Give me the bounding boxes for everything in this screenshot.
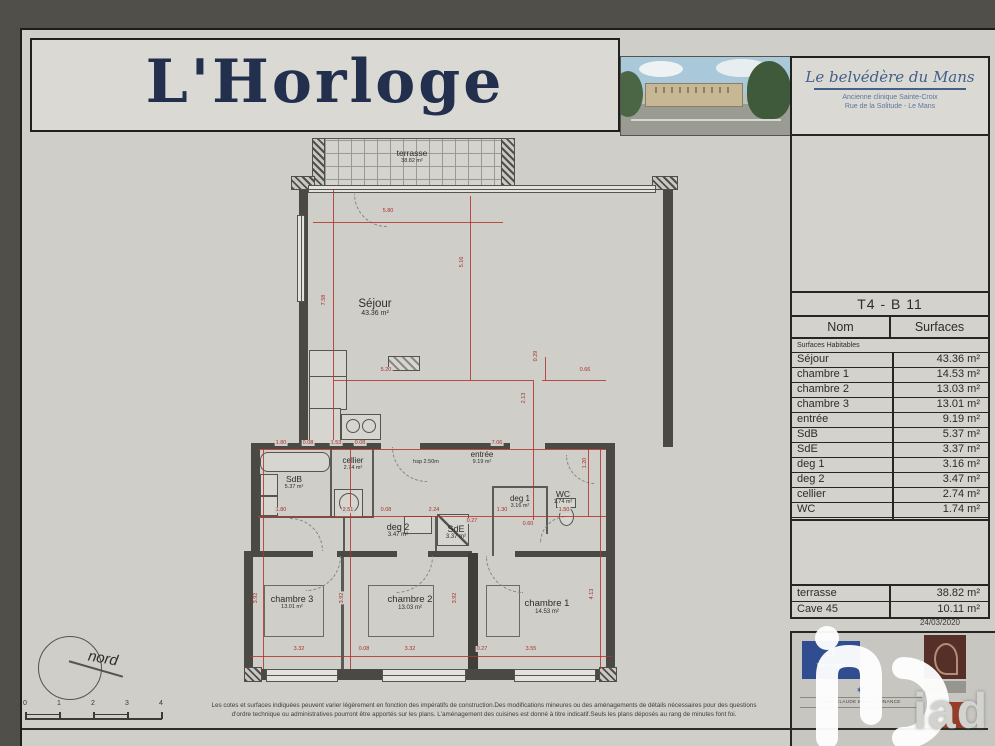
residence-address-line2: Rue de la Solitude - Le Mans [792, 102, 988, 111]
surface-row-name: SdE [792, 443, 892, 457]
cloud-shape [639, 61, 683, 77]
partition [341, 557, 344, 676]
dimension-label: 3.92 [253, 592, 259, 605]
annex-rows: terrasse38.82 m²Cave 4510.11 m² [792, 586, 988, 617]
ra: 13.03 m² [378, 605, 442, 611]
rn: cellier [330, 456, 376, 465]
residence-address-line1: Ancienne clinique Sainte-Croix [792, 93, 988, 102]
dimension-label: 0.27 [466, 518, 479, 524]
dimension-label: 0.29 [533, 350, 539, 363]
dimension-label: 0.08 [354, 440, 367, 446]
surface-row-name: entrée [792, 413, 892, 427]
partition [492, 486, 548, 488]
scale-segment [25, 714, 61, 720]
room-label-chambre3: chambre 3 13.01 m² [262, 594, 322, 610]
surface-row-value: 13.01 m² [892, 398, 988, 412]
surface-row-name: WC [792, 503, 892, 517]
room-label-deg2: deg 2 3.47 m² [370, 522, 426, 538]
dimension-label: 3.32 [404, 646, 417, 652]
dimension-label: 1.80 [275, 440, 288, 446]
wall-segment [337, 551, 397, 557]
annex-row-value: 38.82 m² [889, 586, 988, 601]
col-header-surfaces: Surfaces [889, 317, 988, 337]
residence-underline [814, 88, 966, 90]
surface-row-name: deg 1 [792, 458, 892, 472]
surfaces-rows: Séjour43.36 m²chambre 114.53 m²chambre 2… [792, 353, 988, 518]
scale-segment [93, 714, 129, 720]
room-label-sdb: SdB 5.37 m² [268, 474, 320, 490]
dimension-label: 0.08 [358, 646, 371, 652]
dimension-label: 5.80 [382, 208, 395, 214]
wall-segment [251, 443, 260, 557]
surface-row-value: 14.53 m² [892, 368, 988, 382]
kitchen-unit [309, 350, 347, 378]
wall-segment [251, 551, 313, 557]
disclaimer-line2: d'ordre technique ou administratives pou… [178, 710, 790, 719]
kitchen-unit [309, 376, 347, 410]
iad-dot-shape [815, 626, 839, 650]
iad-n-shape [827, 656, 871, 738]
wall-segment [606, 551, 615, 680]
dimension-line [250, 656, 612, 657]
scale-tick-label: 3 [125, 700, 129, 707]
room-label-sde: SdE 3.37 m² [432, 524, 480, 540]
ra: 2.74 m² [330, 465, 376, 471]
scale-tick [127, 712, 129, 719]
surface-row-value: 43.36 m² [892, 353, 988, 367]
dimension-line [600, 449, 601, 669]
rn: chambre 2 [378, 594, 442, 605]
room-label-cellier: cellier 2.74 m² [330, 456, 376, 471]
residence-name: Le belvédère du Mans [792, 68, 988, 86]
surface-row-name: Séjour [792, 353, 892, 367]
dimension-line [542, 380, 606, 381]
scale-tick [25, 712, 27, 719]
surface-row-value: 13.03 m² [892, 383, 988, 397]
dimension-label: 0.66 [579, 367, 592, 373]
surface-row-name: deg 2 [792, 473, 892, 487]
surface-row-name: chambre 3 [792, 398, 892, 412]
surface-row: SdE3.37 m² [792, 443, 988, 458]
room-label-sejour: Séjour 43.36 m² [325, 298, 425, 317]
dimension-label: 3.92 [452, 592, 458, 605]
rn: deg 1 [496, 494, 544, 503]
wall-segment [244, 551, 253, 680]
dimension-label: 0.27 [476, 646, 489, 652]
rn: deg 2 [370, 522, 426, 532]
room-label-chambre1: chambre 1 14.53 m² [512, 598, 582, 615]
col-header-nom: Nom [792, 317, 889, 337]
dimension-label: 5.20 [380, 367, 393, 373]
scale-bar: 01234 [25, 700, 185, 726]
surface-row: chambre 114.53 m² [792, 368, 988, 383]
dimension-line [333, 190, 334, 445]
dimension-label: 7.58 [321, 294, 327, 307]
annex-row-value: 10.11 m² [889, 602, 988, 617]
dimension-label: 3.32 [293, 646, 306, 652]
dimension-label: 1.53 [330, 440, 343, 446]
closet-outline [264, 585, 324, 637]
scale-tick [59, 712, 61, 719]
disclaimer-text: Les cotes et surfaces indiquées peuvent … [178, 701, 790, 719]
wall-segment [663, 184, 673, 447]
window [297, 215, 305, 302]
ra: 5.37 m² [268, 484, 320, 490]
residence-photo [620, 56, 792, 136]
surfaces-subheader: Surfaces Habitables [792, 339, 988, 353]
dimension-label: 0.08 [380, 507, 393, 513]
tree-shape [747, 61, 791, 119]
wall-segment [606, 443, 615, 557]
annex-row: terrasse38.82 m² [792, 586, 988, 602]
scale-tick [93, 712, 95, 719]
ra: 3.37 m² [432, 534, 480, 540]
surface-row: SdB5.37 m² [792, 428, 988, 443]
dimension-line [258, 449, 606, 450]
plan-sheet-photo: L'Horloge Le belvédère du Mans Ancienne … [0, 0, 995, 746]
iad-watermark-text: iad [913, 682, 988, 740]
window [308, 185, 656, 193]
window [514, 669, 596, 682]
surface-row: deg 13.16 m² [792, 458, 988, 473]
sidebar-empty-box [790, 519, 990, 588]
tree-shape [620, 71, 643, 117]
rn: chambre 3 [262, 594, 322, 604]
rn: terrasse [362, 148, 462, 158]
scale-tick-label: 0 [23, 700, 27, 707]
dimension-line [545, 357, 546, 381]
dimension-label: 1.30 [496, 507, 509, 513]
sink-basin-shape [362, 419, 376, 433]
room-label-entree: entrée 9.19 m² [458, 450, 506, 465]
ra: 1.74 m² [548, 499, 578, 505]
dimension-label: 0.60 [522, 521, 535, 527]
dimension-line [470, 196, 471, 380]
room-label-terrasse: terrasse 38.82 m² [362, 148, 462, 164]
ra: 13.01 m² [262, 604, 322, 610]
window [382, 669, 466, 682]
sink-basin-shape [346, 419, 360, 433]
dimension-label: 5.16 [459, 256, 465, 269]
surface-row-value: 5.37 m² [892, 428, 988, 442]
residence-card: Le belvédère du Mans Ancienne clinique S… [790, 56, 990, 138]
surface-row-name: SdB [792, 428, 892, 442]
rn: SdE [432, 524, 480, 534]
surface-row: cellier2.74 m² [792, 488, 988, 503]
surface-row-value: 2.74 m² [892, 488, 988, 502]
bathtub [260, 452, 330, 472]
dimension-label: 1.80 [275, 507, 288, 513]
dimension-label: 2.24 [428, 507, 441, 513]
rn: Séjour [325, 298, 425, 310]
closet-outline [368, 585, 434, 637]
annex-row: Cave 4510.11 m² [792, 602, 988, 617]
disclaimer-line1: Les cotes et surfaces indiquées peuvent … [178, 701, 790, 710]
rn: WC [548, 489, 578, 499]
dimension-label: 4.13 [589, 588, 595, 601]
hatched-wall [599, 667, 617, 682]
road-marking-shape [631, 119, 781, 121]
building-windows-shape [655, 87, 731, 93]
surface-row-name: cellier [792, 488, 892, 502]
surface-row: Séjour43.36 m² [792, 353, 988, 368]
room-label-wc: WC 1.74 m² [548, 489, 578, 505]
surface-row-value: 9.19 m² [892, 413, 988, 427]
surface-row-value: 3.37 m² [892, 443, 988, 457]
ra: 3.47 m² [370, 532, 426, 538]
dimension-line [588, 449, 589, 517]
room-label-chambre2: chambre 2 13.03 m² [378, 594, 442, 611]
ra: 38.82 m² [362, 158, 462, 164]
scale-tick-label: 1 [57, 700, 61, 707]
surface-row: deg 23.47 m² [792, 473, 988, 488]
dimension-line [533, 380, 534, 520]
dimension-line [313, 222, 503, 223]
window [266, 669, 338, 682]
surfaces-table-header: Nom Surfaces [792, 317, 988, 339]
dimension-label: 2.51 [342, 507, 355, 513]
scale-tick-label: 4 [159, 700, 163, 707]
surface-row: chambre 213.03 m² [792, 383, 988, 398]
surface-row: WC1.74 m² [792, 503, 988, 518]
annex-table: terrasse38.82 m²Cave 4510.11 m² [790, 584, 990, 619]
hatched-wall [244, 667, 262, 682]
scale-tick-label: 2 [91, 700, 95, 707]
rn: SdB [268, 474, 320, 484]
dimension-label: 3.55 [525, 646, 538, 652]
surfaces-table: Nom Surfaces Surfaces Habitables Séjour4… [790, 315, 990, 537]
wall-segment [468, 553, 478, 677]
dimension-label: 1.50 [558, 507, 571, 513]
dimension-label: 3.92 [339, 592, 345, 605]
annex-row-name: terrasse [792, 586, 889, 601]
dimension-label: 2.13 [521, 392, 527, 405]
surface-row-value: 3.16 m² [892, 458, 988, 472]
surface-row: entrée9.19 m² [792, 413, 988, 428]
rn: chambre 1 [512, 598, 582, 609]
annex-row-name: Cave 45 [792, 602, 889, 617]
ra: 43.36 m² [325, 310, 425, 317]
surface-row: chambre 313.01 m² [792, 398, 988, 413]
surface-row-name: chambre 1 [792, 368, 892, 382]
keyplan-box: premier étage [790, 134, 990, 295]
wall-segment [515, 551, 610, 557]
dimension-label: 0.08 [302, 440, 315, 446]
partition [492, 516, 494, 556]
dimension-line [263, 449, 264, 669]
dimension-line [350, 449, 351, 669]
dimension-line [258, 516, 606, 517]
dimension-line [333, 380, 533, 381]
surface-row-value: 3.47 m² [892, 473, 988, 487]
dimension-label: 7.06 [491, 440, 504, 446]
scale-tick [161, 712, 163, 719]
ra: 9.19 m² [458, 459, 506, 465]
dimension-label: 1.20 [582, 457, 588, 470]
surface-row-value: 1.74 m² [892, 503, 988, 517]
ra: 14.53 m² [512, 609, 582, 615]
wall-segment [428, 551, 472, 557]
program-logo-box: L'Horloge [30, 38, 620, 132]
kitchen-island [388, 356, 420, 371]
rn: entrée [458, 450, 506, 459]
surface-row-name: chambre 2 [792, 383, 892, 397]
program-logo-text: L'Horloge [32, 40, 618, 124]
partition [343, 516, 345, 556]
